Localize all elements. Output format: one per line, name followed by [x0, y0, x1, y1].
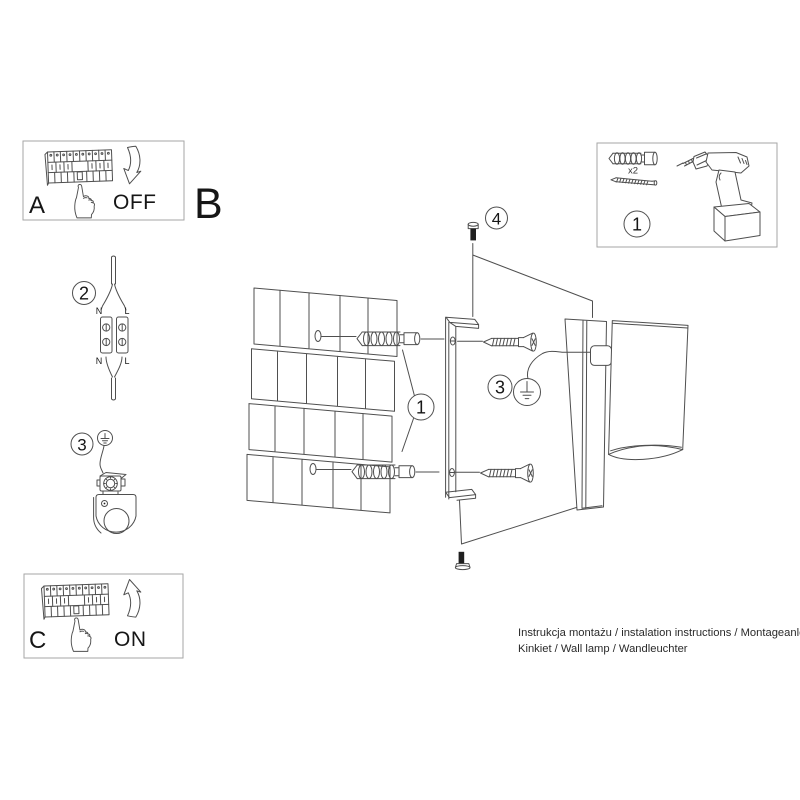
wall-tiles-icon [247, 287, 397, 513]
screw-icon [458, 333, 537, 351]
pointing-hand-icon [75, 184, 95, 217]
callout-1-number: 1 [416, 398, 426, 418]
drill-icon [677, 152, 760, 241]
instruction-sheet: A OFF 2 N L N L 3 [0, 0, 800, 800]
wall-anchor-icon [310, 464, 439, 479]
step-3-number: 3 [77, 436, 86, 455]
panel-c-letter: C [29, 627, 46, 654]
step-2-number: 2 [79, 284, 89, 304]
lamp-body-icon [609, 321, 688, 460]
panel-power-on: C ON [24, 574, 183, 658]
callout-3-number: 3 [495, 378, 505, 398]
footer: Instrukcja montażu / instalation instruc… [518, 627, 800, 655]
ground-clamp-icon [94, 446, 136, 534]
ground-symbol-icon [514, 379, 541, 406]
off-label: OFF [113, 191, 157, 214]
ground-terminal-tab [591, 346, 612, 366]
curved-arrow-up-icon [124, 580, 141, 618]
pointing-hand-icon [71, 618, 91, 651]
ground-symbol-icon [98, 431, 113, 446]
step-grounding-detail: 3 [71, 431, 136, 534]
panel-power-off: A OFF [23, 141, 184, 220]
label-n-bottom: N [96, 356, 103, 366]
curved-arrow-down-icon [124, 146, 141, 184]
on-label: ON [114, 628, 147, 651]
wall-anchor-icon [315, 331, 444, 346]
panel-a-letter: A [29, 192, 45, 219]
panel-c-border [24, 574, 183, 658]
mounting-bracket-icon [446, 317, 479, 500]
screw-icon [455, 464, 534, 482]
callout-4-number: 4 [492, 210, 501, 229]
fixing-screw-top: 4 [468, 207, 592, 318]
tools-1-number: 1 [632, 215, 642, 235]
callout-anchors: 1 [402, 350, 434, 452]
footer-line-2: Kinkiet / Wall lamp / Wandleuchter [518, 643, 688, 655]
main-diagram: B 1 [194, 180, 688, 570]
breaker-panel-icon [41, 584, 109, 620]
label-l-bottom: L [124, 356, 129, 366]
panel-b-letter: B [194, 180, 223, 228]
fixing-screw-bottom [455, 501, 579, 570]
anchor-qty-label: x2 [628, 166, 638, 177]
panel-tools: x2 1 [597, 143, 777, 247]
footer-line-1: Instrukcja montażu / instalation instruc… [518, 627, 800, 639]
screw-icon [611, 178, 657, 185]
terminal-block-icon [101, 256, 129, 400]
diagram-canvas: A OFF 2 N L N L 3 [0, 0, 800, 800]
label-l-top: L [124, 306, 129, 316]
wall-anchor-icon [609, 152, 657, 165]
step-wiring: 2 N L N L [73, 256, 130, 400]
label-n-top: N [96, 306, 103, 316]
breaker-panel-icon [45, 150, 113, 186]
